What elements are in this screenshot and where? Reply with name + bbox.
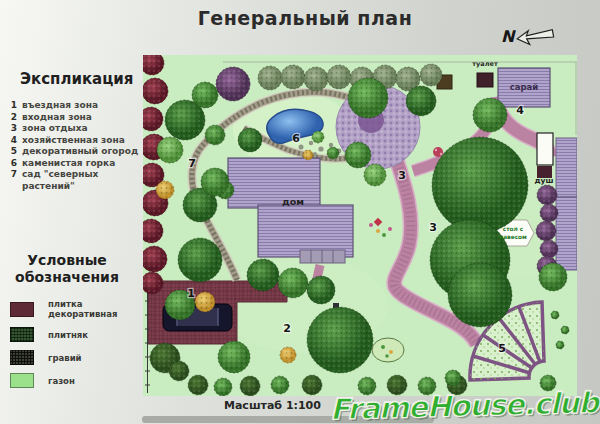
site-plan: дом сарай туалет душ стол с навесом 1 2 … [143, 55, 577, 396]
house-upper [228, 158, 320, 208]
tree [143, 219, 163, 243]
tree [303, 150, 313, 160]
tree [348, 78, 388, 118]
tree [281, 65, 305, 89]
tree [178, 238, 222, 282]
north-arrow-icon [516, 27, 556, 47]
tree [143, 272, 163, 294]
tree [561, 326, 569, 334]
legend-swatch-gravel [10, 350, 34, 365]
legend-swatch-lawn [10, 373, 34, 388]
legend-item: гравий [10, 350, 142, 365]
zone-marker-2: 2 [283, 322, 291, 335]
tree [238, 128, 262, 152]
toilet-label: туалет [472, 60, 498, 68]
explication-item: 7сад "северных растений" [8, 169, 142, 192]
tree [420, 64, 442, 86]
tree [143, 107, 163, 131]
tree [247, 259, 279, 291]
shower-cabin [537, 133, 553, 165]
explication-item: 2входная зона [8, 112, 142, 124]
tree [201, 168, 229, 196]
tree [280, 347, 296, 363]
tree [302, 375, 322, 395]
zone-marker-3a: 3 [398, 169, 406, 182]
explication-heading: Экспликация [20, 70, 142, 88]
tree [432, 137, 528, 233]
zone-marker-1: 1 [187, 287, 195, 300]
tree [258, 66, 282, 90]
tree [240, 376, 260, 396]
tree [445, 370, 461, 386]
legend-item: плитка декоративная [10, 299, 142, 319]
tree [195, 292, 215, 312]
garden-plan-page: Генеральный план N Экспликация 1въездная… [0, 0, 600, 424]
tree [278, 268, 308, 298]
north-label: N [501, 27, 514, 46]
table-label-line1: стол с [503, 226, 524, 232]
shed-label: сарай [510, 82, 539, 92]
zone-marker-4: 4 [516, 104, 524, 117]
tree [448, 263, 512, 327]
explication-item: 5декоративный огород [8, 146, 142, 158]
scale-label: Масштаб 1:100 [224, 399, 321, 412]
explication-item: 4хозяйственная зона [8, 135, 142, 147]
legend-swatch-tile [10, 302, 34, 317]
zone-marker-6: 6 [292, 132, 300, 145]
tree [218, 341, 250, 373]
tree [192, 82, 218, 108]
explication-item: 6каменистая горка [8, 158, 142, 170]
legend-list: плитка декоративная плитняк гравий газон [6, 299, 142, 388]
tree [307, 276, 335, 304]
tree [169, 361, 189, 381]
page-title: Генеральный план [168, 7, 442, 29]
legend-item: плитняк [10, 327, 142, 342]
explication-item: 3зона отдыха [8, 123, 142, 135]
tree [188, 375, 208, 395]
tree [345, 142, 371, 168]
tree [271, 376, 289, 394]
tree [307, 307, 373, 373]
tree [304, 67, 328, 91]
house-steps [300, 250, 345, 263]
tree [551, 311, 559, 319]
explication-item: 1въездная зона [8, 100, 142, 112]
zone-marker-5: 5 [498, 342, 506, 355]
legend-heading: Условные обозначения [8, 252, 126, 286]
tree [327, 65, 351, 89]
tree [214, 378, 232, 396]
house-lower [258, 205, 353, 257]
tree [157, 137, 183, 163]
compass: N [501, 27, 556, 47]
tree [556, 341, 564, 349]
tree [536, 221, 556, 241]
legend-item: газон [10, 373, 142, 388]
house-label: дом [282, 196, 304, 207]
tree [537, 185, 557, 205]
table-label-line2: навесом [499, 234, 527, 240]
tree [540, 240, 558, 258]
tree [540, 204, 558, 222]
canopy [556, 138, 577, 270]
tree [205, 125, 225, 145]
zone-marker-3b: 3 [429, 221, 437, 234]
explication-list: 1въездная зона 2входная зона 3зона отдых… [6, 100, 142, 192]
watermark: FrameHouse.club [330, 385, 599, 424]
tree [539, 263, 567, 291]
tree [364, 164, 386, 186]
shower-label: душ [535, 176, 554, 185]
zone-marker-7: 7 [188, 157, 196, 170]
tree [473, 98, 507, 132]
tree [312, 131, 324, 143]
legend-swatch-flagstone [10, 327, 34, 342]
sidebar: Экспликация 1въездная зона 2входная зона… [6, 70, 142, 396]
tree [406, 86, 436, 116]
tree [143, 78, 168, 104]
tree [156, 181, 174, 199]
tree [327, 147, 339, 159]
tree [216, 67, 250, 101]
toilet-box [477, 73, 493, 87]
